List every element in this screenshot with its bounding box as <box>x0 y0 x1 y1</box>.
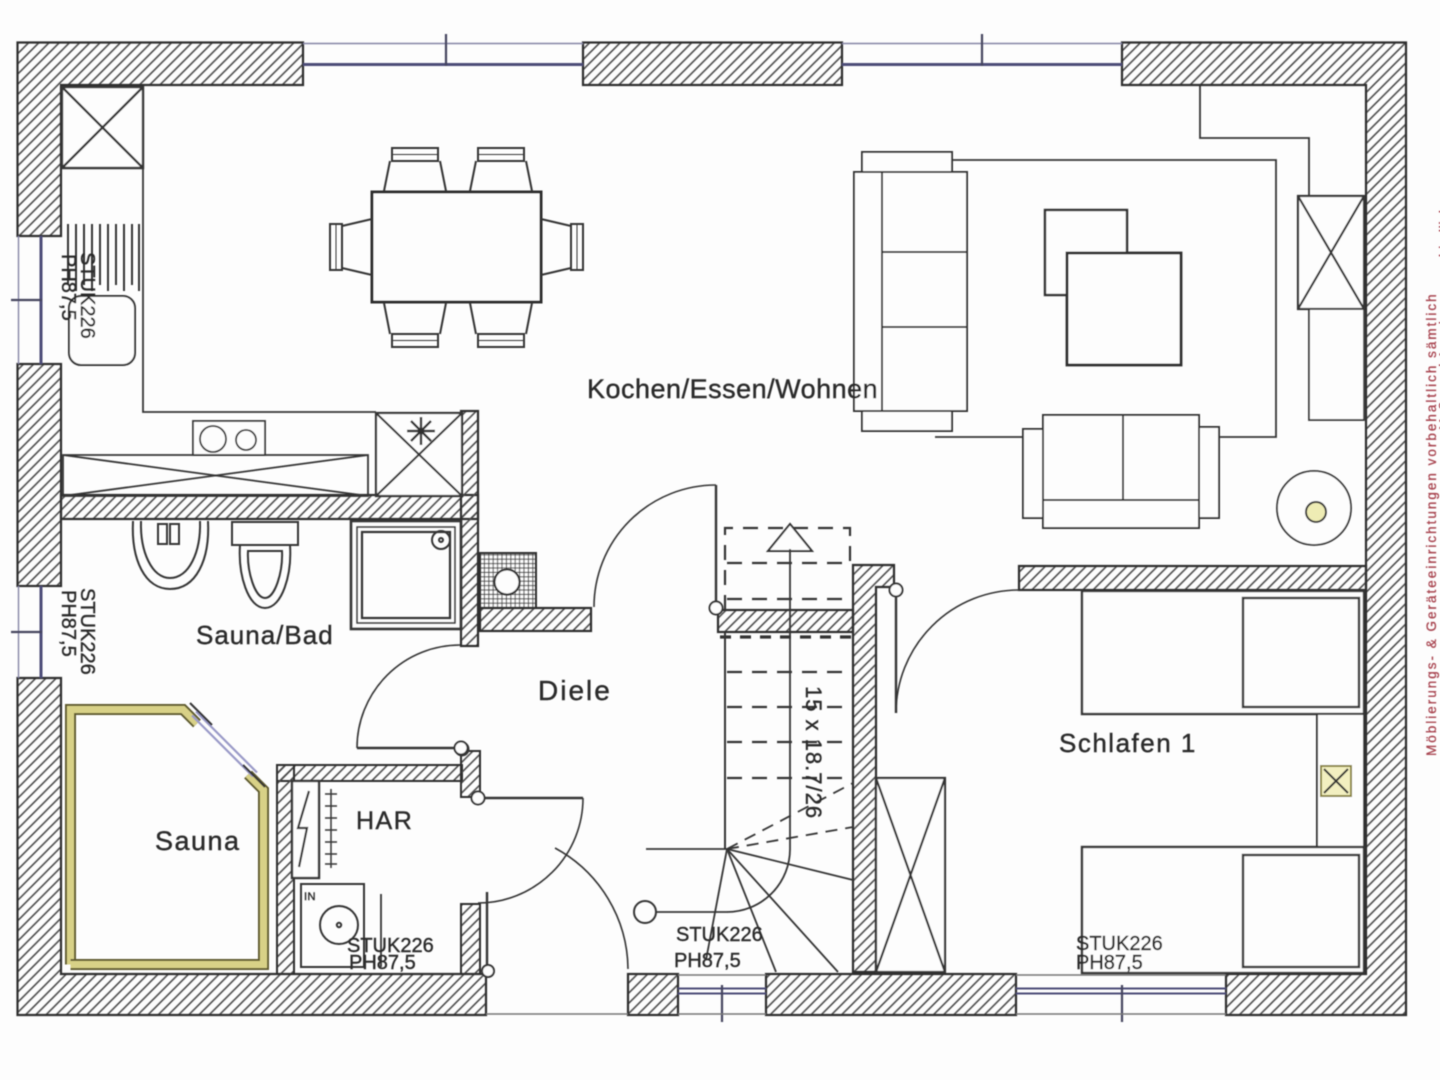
svg-text:STUK226: STUK226 <box>676 924 763 946</box>
svg-text:Sauna/Bad: Sauna/Bad <box>196 620 334 650</box>
svg-text:Sauna: Sauna <box>155 826 241 856</box>
svg-text:Diele: Diele <box>538 675 612 706</box>
svg-text:IN: IN <box>304 891 316 903</box>
svg-text:PH87,5: PH87,5 <box>674 950 741 972</box>
svg-text:Schlafen 1: Schlafen 1 <box>1059 728 1197 758</box>
svg-text:15 x 18.7/26: 15 x 18.7/26 <box>801 686 826 819</box>
svg-text:PH87,5: PH87,5 <box>1076 952 1143 974</box>
svg-text:PH87,5: PH87,5 <box>57 254 79 321</box>
svg-text:PH87,5: PH87,5 <box>57 590 79 657</box>
svg-text:HAR: HAR <box>356 807 413 835</box>
svg-text:Kochen/Essen/Wohnen: Kochen/Essen/Wohnen <box>587 374 878 404</box>
svg-text:PH87,5: PH87,5 <box>349 952 416 974</box>
